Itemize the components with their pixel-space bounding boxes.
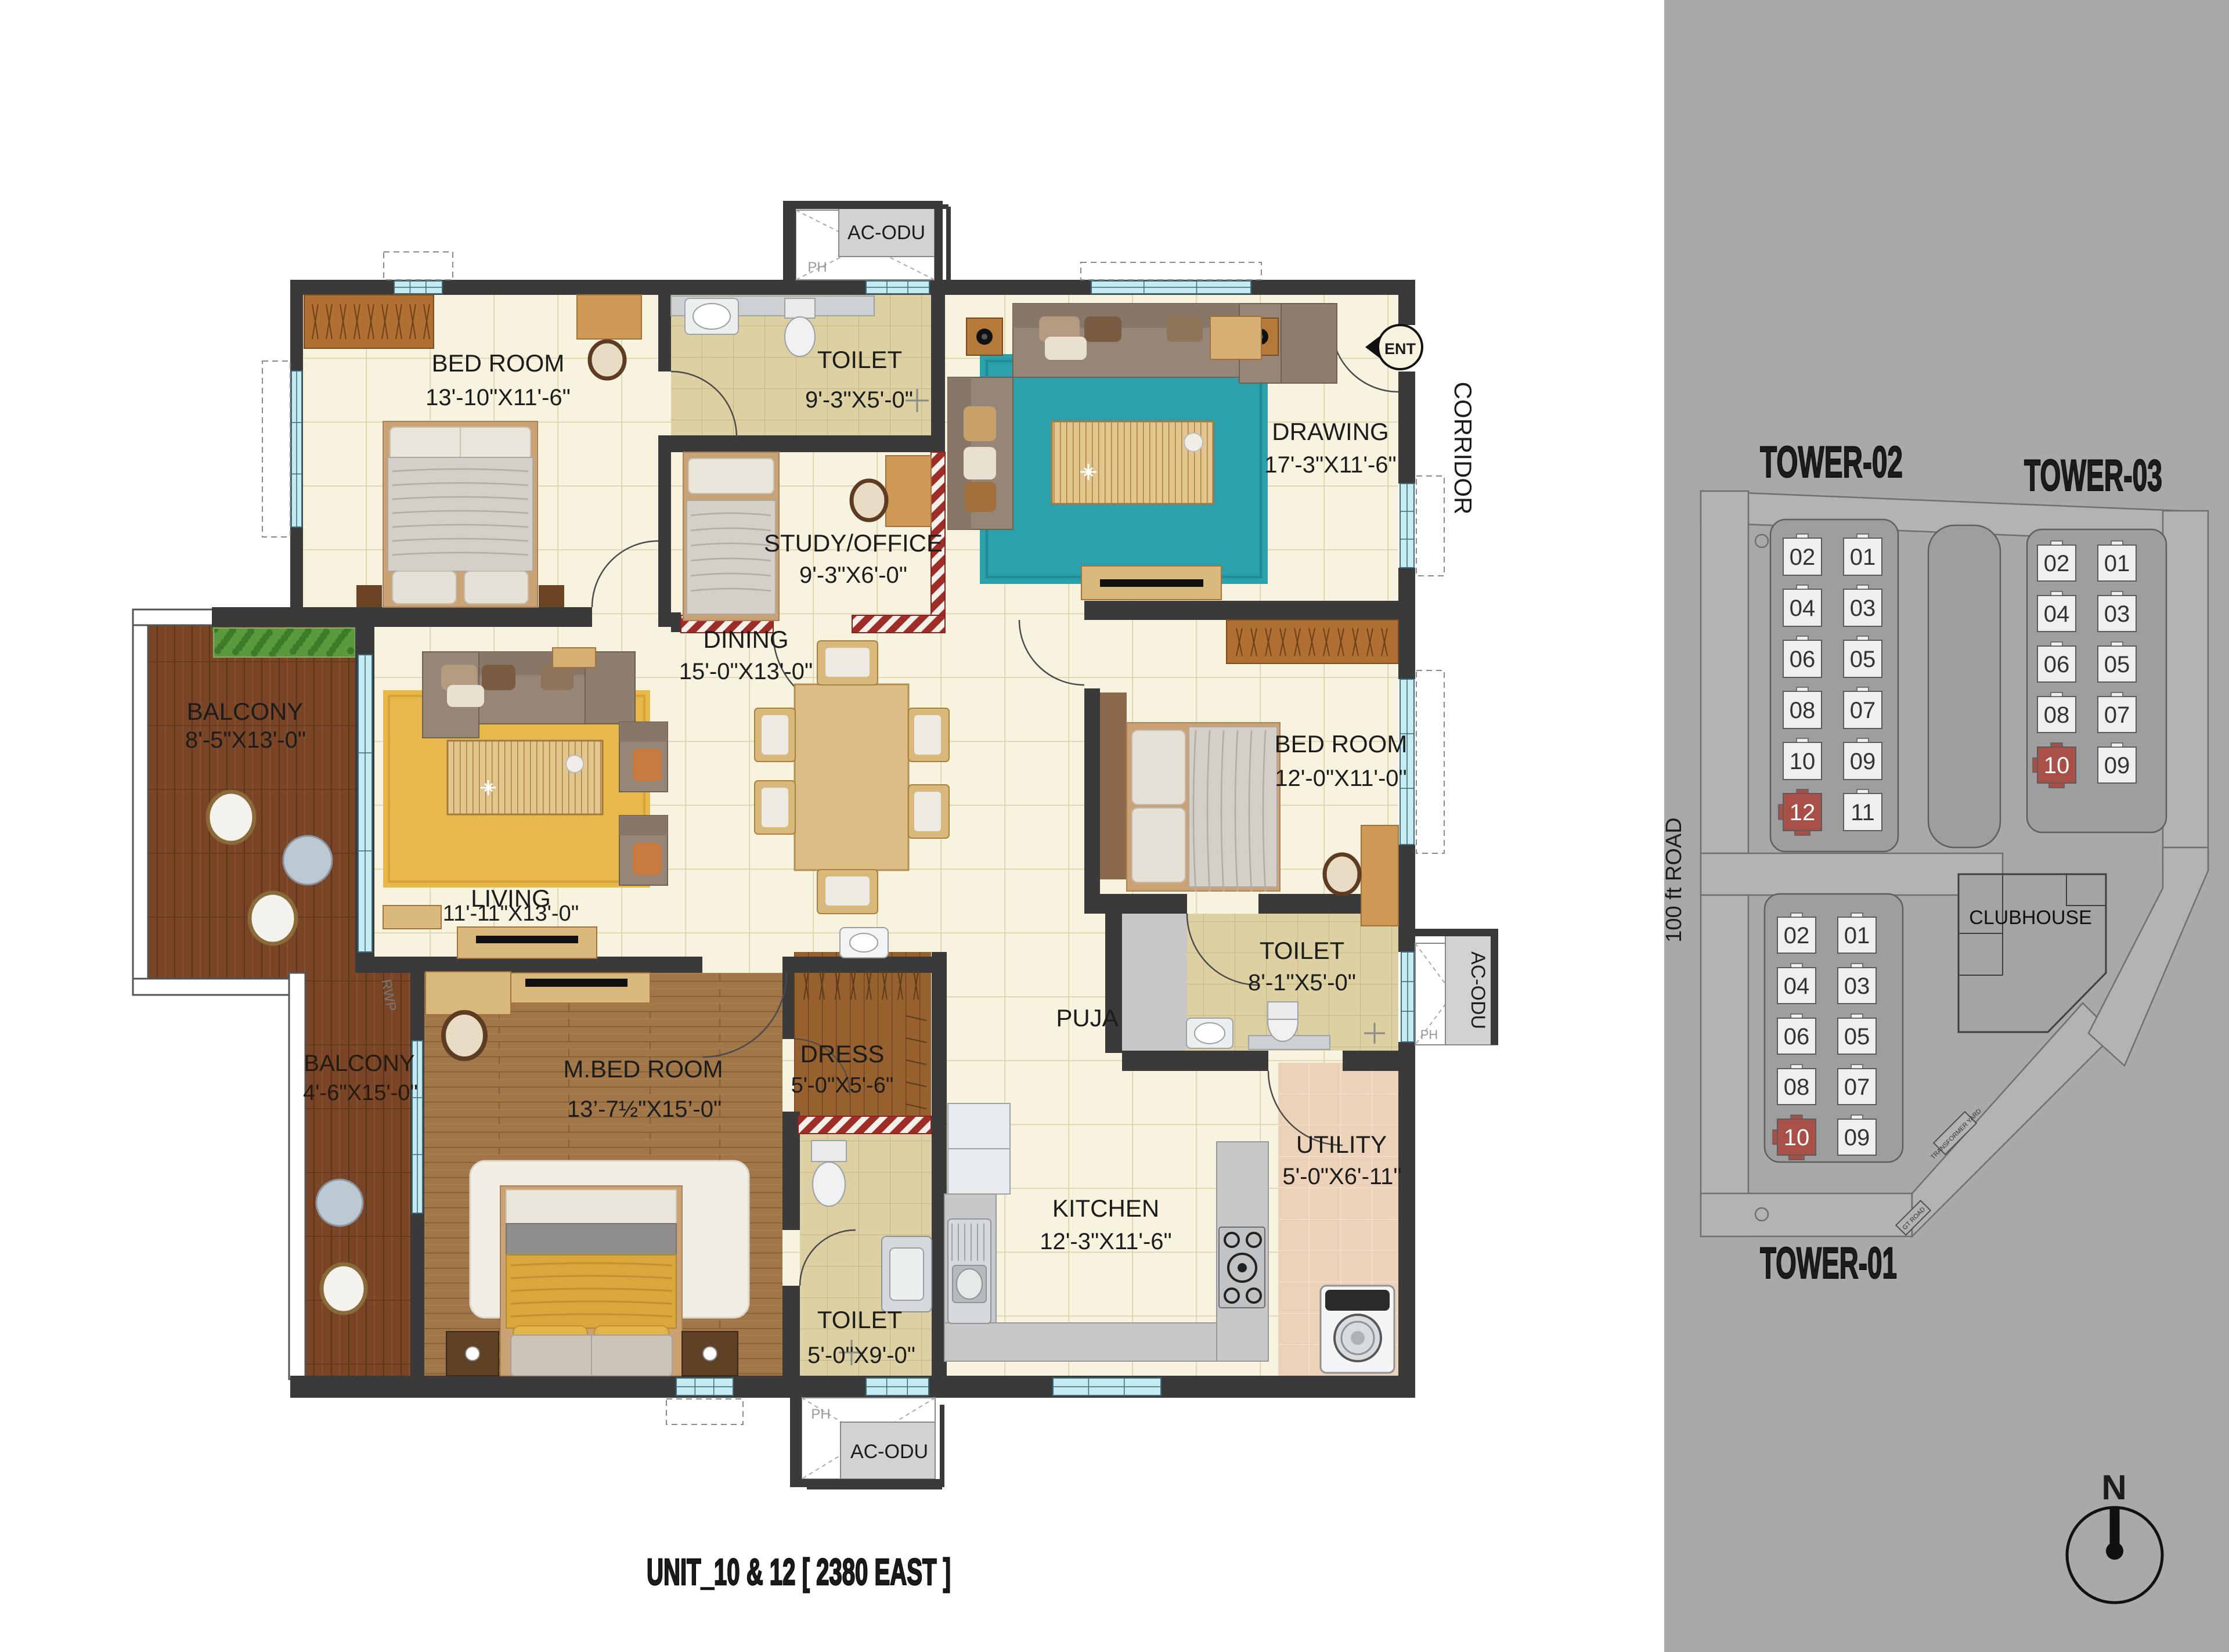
- svg-text:100 ft ROAD: 100 ft ROAD: [1662, 817, 1686, 942]
- svg-text:10: 10: [2044, 753, 2070, 778]
- svg-text:01: 01: [1850, 544, 1876, 570]
- svg-text:STUDY/OFFICE: STUDY/OFFICE: [764, 529, 943, 557]
- svg-text:ENT: ENT: [1384, 340, 1416, 358]
- svg-text:TOILET: TOILET: [817, 346, 902, 373]
- svg-text:N: N: [2101, 1468, 2126, 1507]
- svg-text:PH: PH: [811, 1406, 830, 1422]
- svg-text:5'-0"X9'-0": 5'-0"X9'-0": [807, 1343, 915, 1368]
- svg-text:02: 02: [2044, 551, 2070, 576]
- svg-text:PUJA: PUJA: [1056, 1004, 1118, 1031]
- svg-text:03: 03: [1844, 973, 1870, 999]
- svg-text:05: 05: [1844, 1024, 1870, 1049]
- svg-text:01: 01: [2104, 551, 2130, 576]
- svg-text:TOWER-03: TOWER-03: [2024, 451, 2162, 500]
- svg-text:10: 10: [1790, 749, 1816, 774]
- svg-text:9'-3"X5'-0": 9'-3"X5'-0": [805, 387, 913, 413]
- svg-text:02: 02: [1784, 923, 1810, 948]
- svg-text:09: 09: [2104, 753, 2130, 778]
- svg-text:8'-5"X13'-0": 8'-5"X13'-0": [185, 727, 306, 753]
- svg-text:13’-7½"X15’-0": 13’-7½"X15’-0": [567, 1096, 722, 1122]
- svg-text:15'-0"X13'-0": 15'-0"X13'-0": [679, 659, 813, 684]
- svg-text:TOWER-02: TOWER-02: [1760, 438, 1903, 487]
- svg-text:04: 04: [1790, 596, 1816, 621]
- svg-text:AC-ODU: AC-ODU: [1467, 951, 1489, 1029]
- svg-text:05: 05: [1850, 647, 1876, 672]
- svg-text:DINING: DINING: [704, 626, 789, 653]
- svg-text:03: 03: [2104, 601, 2130, 627]
- svg-text:07: 07: [1850, 698, 1876, 723]
- svg-text:UNIT_10 & 12 [ 2380 EAST ]: UNIT_10 & 12 [ 2380 EAST ]: [647, 1551, 951, 1593]
- svg-text:UTILITY: UTILITY: [1296, 1131, 1387, 1158]
- svg-text:CLUBHOUSE: CLUBHOUSE: [1969, 907, 2092, 929]
- svg-text:08: 08: [1790, 698, 1816, 723]
- svg-text:05: 05: [2104, 652, 2130, 677]
- svg-text:12'-3"X11'-6": 12'-3"X11'-6": [1040, 1229, 1172, 1254]
- svg-text:01: 01: [1844, 923, 1870, 948]
- svg-text:17'-3"X11'-6": 17'-3"X11'-6": [1264, 452, 1397, 478]
- svg-text:13'-10"X11'-6": 13'-10"X11'-6": [425, 385, 571, 410]
- svg-text:TOILET: TOILET: [1260, 937, 1344, 964]
- svg-text:M.BED ROOM: M.BED ROOM: [563, 1055, 723, 1083]
- svg-text:DRESS: DRESS: [800, 1040, 885, 1067]
- svg-text:02: 02: [1790, 544, 1816, 570]
- svg-text:03: 03: [1850, 596, 1876, 621]
- svg-text:07: 07: [2104, 702, 2130, 728]
- svg-text:08: 08: [1784, 1074, 1810, 1100]
- svg-text:09: 09: [1844, 1125, 1870, 1150]
- svg-text:4'-6"X15'-0": 4'-6"X15'-0": [303, 1081, 418, 1105]
- svg-text:07: 07: [1844, 1074, 1870, 1100]
- svg-text:TOWER-01: TOWER-01: [1760, 1239, 1897, 1288]
- svg-text:12: 12: [1790, 800, 1816, 825]
- svg-text:9'-3"X6'-0": 9'-3"X6'-0": [799, 562, 907, 588]
- svg-text:BED ROOM: BED ROOM: [1275, 730, 1408, 758]
- svg-text:12'-0"X11'-0": 12'-0"X11'-0": [1275, 766, 1407, 791]
- svg-text:AC-ODU: AC-ODU: [847, 222, 925, 244]
- svg-text:06: 06: [2044, 652, 2070, 677]
- svg-text:09: 09: [1850, 749, 1876, 774]
- svg-text:KITCHEN: KITCHEN: [1052, 1195, 1159, 1222]
- svg-text:CORRIDOR: CORRIDOR: [1449, 382, 1477, 515]
- svg-text:PH: PH: [1420, 1027, 1438, 1042]
- svg-text:BALCONY: BALCONY: [187, 698, 304, 725]
- svg-text:11'-11"X13'-0": 11'-11"X13'-0": [443, 901, 579, 926]
- svg-text:10: 10: [1784, 1125, 1810, 1150]
- svg-text:04: 04: [2044, 601, 2070, 627]
- svg-text:06: 06: [1790, 647, 1816, 672]
- svg-text:PH: PH: [807, 259, 827, 275]
- svg-text:DRAWING: DRAWING: [1272, 418, 1388, 445]
- svg-text:AC-ODU: AC-ODU: [850, 1441, 928, 1463]
- svg-text:5'-0"X5'-6": 5'-0"X5'-6": [791, 1073, 894, 1098]
- svg-text:08: 08: [2044, 702, 2070, 728]
- svg-text:04: 04: [1784, 973, 1810, 999]
- svg-text:TOILET: TOILET: [817, 1306, 902, 1333]
- svg-text:5'-0"X6'-11": 5'-0"X6'-11": [1282, 1164, 1401, 1189]
- svg-text:8'-1"X5'-0": 8'-1"X5'-0": [1248, 970, 1356, 995]
- svg-text:BED ROOM: BED ROOM: [432, 349, 565, 377]
- svg-text:BALCONY: BALCONY: [304, 1051, 414, 1076]
- svg-text:06: 06: [1784, 1024, 1810, 1049]
- svg-text:11: 11: [1851, 800, 1875, 825]
